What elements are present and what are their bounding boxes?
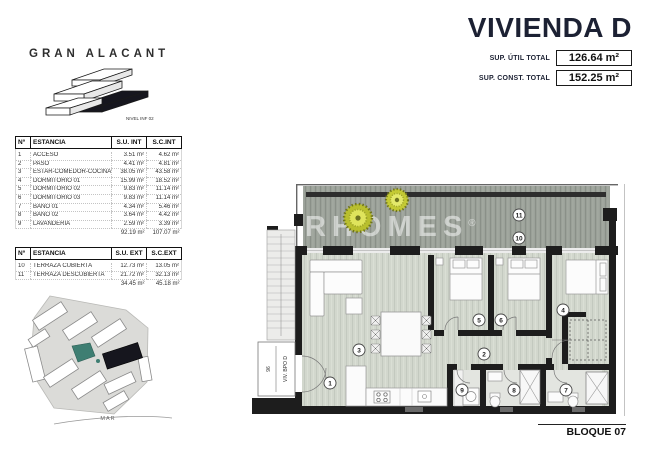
room-marker: 6 — [495, 314, 507, 326]
total-util-label: SUP. ÚTIL TOTAL — [490, 55, 550, 62]
col-num: Nº — [16, 137, 31, 149]
brand-building-logo-icon: NIVEL INF 02 — [30, 62, 180, 132]
toilet-icon — [568, 396, 578, 407]
svg-text:1: 1 — [328, 380, 332, 387]
col-estancia: ESTANCIA — [31, 137, 112, 149]
col-su-ext: S.U. EXT — [112, 248, 147, 260]
room-marker: 11 — [513, 209, 525, 221]
table-row: 11TERRAZA DESCUBIERTA21.72 m²32.13 m² — [16, 271, 182, 280]
svg-text:6: 6 — [499, 317, 503, 324]
room-marker: 4 — [557, 304, 569, 316]
table-row: 9LAVANDERIA2.59 m²3.39 m² — [16, 220, 182, 229]
logo-level-label: NIVEL INF 02 — [126, 116, 154, 121]
plant-icon — [386, 189, 408, 211]
col-su-int: S.U. INT — [112, 137, 147, 149]
svg-text:5: 5 — [477, 317, 481, 324]
room-marker: 7 — [560, 384, 572, 396]
table-row: 6DORMITORIO 039.83 m²11.14 m² — [16, 194, 182, 203]
table-row: 5DORMITORIO 029.83 m²11.14 m² — [16, 186, 182, 195]
interior-table-header: Nº ESTANCIA S.U. INT S.C.INT — [16, 137, 182, 149]
col-estancia: ESTANCIA — [31, 248, 112, 260]
page-title: VIVIENDA D — [468, 12, 632, 44]
table-row: 2PASO4.41 m²4.81 m² — [16, 160, 182, 169]
total-util-row: SUP. ÚTIL TOTAL 126.64 m² — [490, 50, 632, 66]
svg-text:11: 11 — [516, 212, 523, 219]
interior-total-su: 92.19 m² — [112, 229, 147, 238]
svg-text:9: 9 — [460, 387, 464, 394]
room-marker: 1 — [324, 377, 336, 389]
total-const-value: 152.25 m² — [556, 70, 632, 86]
total-const-label: SUP. CONST. TOTAL — [479, 75, 550, 82]
unit-label: VIV. BPO D — [283, 356, 289, 382]
interior-totals-row: 92.19 m² 107.07 m² — [16, 229, 182, 238]
svg-text:8: 8 — [512, 387, 516, 394]
svg-text:10: 10 — [515, 235, 523, 242]
interior-areas-table: Nº ESTANCIA S.U. INT S.C.INT 1ACCESO3.51… — [15, 136, 182, 237]
table-row: 10TERRAZA CUBIERTA12.73 m²13.05 m² — [16, 263, 182, 271]
site-sea-label: MAR — [100, 416, 115, 422]
room-marker: 2 — [478, 348, 490, 360]
exterior-table-header: Nº ESTANCIA S.U. EXT S.C.EXT — [16, 248, 182, 260]
col-sc-ext: S.C.EXT — [147, 248, 182, 260]
brand-title: GRAN ALACANT — [29, 48, 169, 60]
col-num: Nº — [16, 248, 31, 260]
col-sc-int: S.C.INT — [147, 137, 182, 149]
room-marker: 5 — [473, 314, 485, 326]
interior-total-sc: 107.07 m² — [147, 229, 182, 238]
room-marker: 9 — [456, 384, 468, 396]
plan-sheet: GRAN ALACANT NIVEL INF 02 VIVIENDA D SUP… — [0, 0, 650, 450]
exterior-totals-row: 34.45 m² 45.18 m² — [16, 280, 182, 289]
total-util-value: 126.64 m² — [556, 50, 632, 66]
svg-text:3: 3 — [357, 347, 361, 354]
unit-number: 96 — [266, 366, 272, 372]
site-pool-small — [96, 359, 100, 363]
total-const-row: SUP. CONST. TOTAL 152.25 m² — [479, 70, 632, 86]
table-row: 1ACCESO3.51 m²4.62 m² — [16, 152, 182, 160]
floor-plan: AIRHOMES® — [250, 160, 630, 428]
table-row: 7BAÑO 014.34 m²5.46 m² — [16, 203, 182, 212]
bed-master — [566, 260, 608, 294]
surface-totals: SUP. ÚTIL TOTAL 126.64 m² SUP. CONST. TO… — [479, 50, 632, 86]
stairs — [267, 230, 295, 340]
svg-text:2: 2 — [482, 351, 486, 358]
room-marker: 3 — [353, 344, 365, 356]
table-row: 8BAÑO 023.64 m²4.42 m² — [16, 212, 182, 221]
room-marker: 10 — [513, 232, 525, 244]
toilet-icon — [490, 396, 500, 407]
svg-text:4: 4 — [561, 307, 565, 314]
exterior-total-su: 34.45 m² — [112, 280, 147, 289]
unit-label-box: 96 VIV. BPO D — [258, 342, 295, 396]
plant-icon — [344, 204, 372, 232]
sink-icon — [418, 391, 431, 402]
dining-table — [371, 312, 431, 356]
room-marker: 8 — [508, 384, 520, 396]
sink-icon — [488, 372, 502, 381]
table-row: 4DORMITORIO 0115.99 m²18.52 m² — [16, 177, 182, 186]
site-plan: MAR — [8, 290, 193, 440]
table-row: 3ESTAR-COMEDOR-COCINA38.05 m²43.58 m² — [16, 169, 182, 178]
block-label: BLOQUE 07 — [538, 424, 626, 438]
svg-text:7: 7 — [564, 387, 568, 394]
exterior-total-sc: 45.18 m² — [147, 280, 182, 289]
exterior-areas-table: Nº ESTANCIA S.U. EXT S.C.EXT 10TERRAZA C… — [15, 247, 182, 288]
